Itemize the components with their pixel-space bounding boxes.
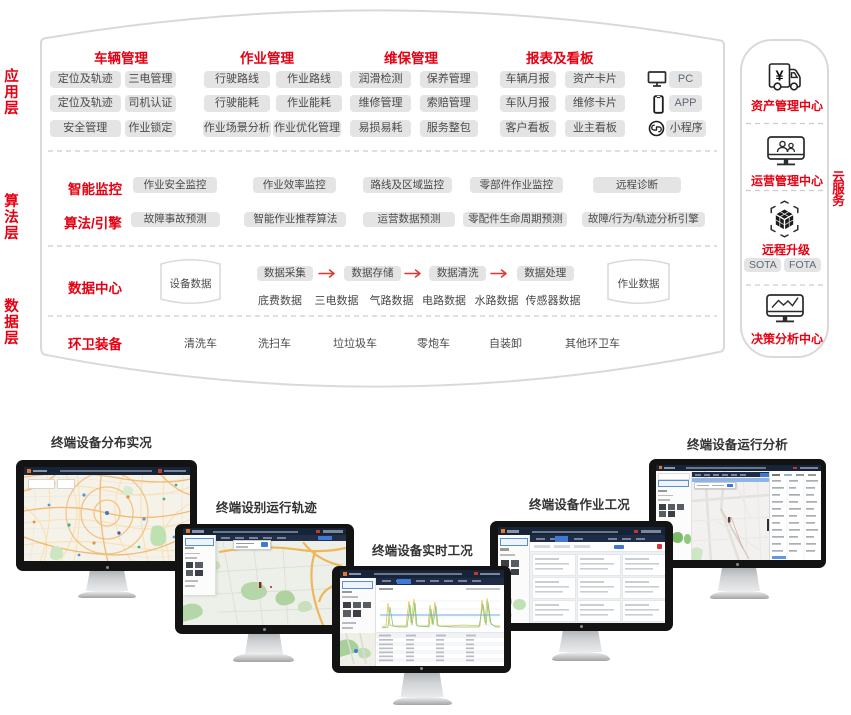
svg-text:¥: ¥ xyxy=(775,69,783,85)
